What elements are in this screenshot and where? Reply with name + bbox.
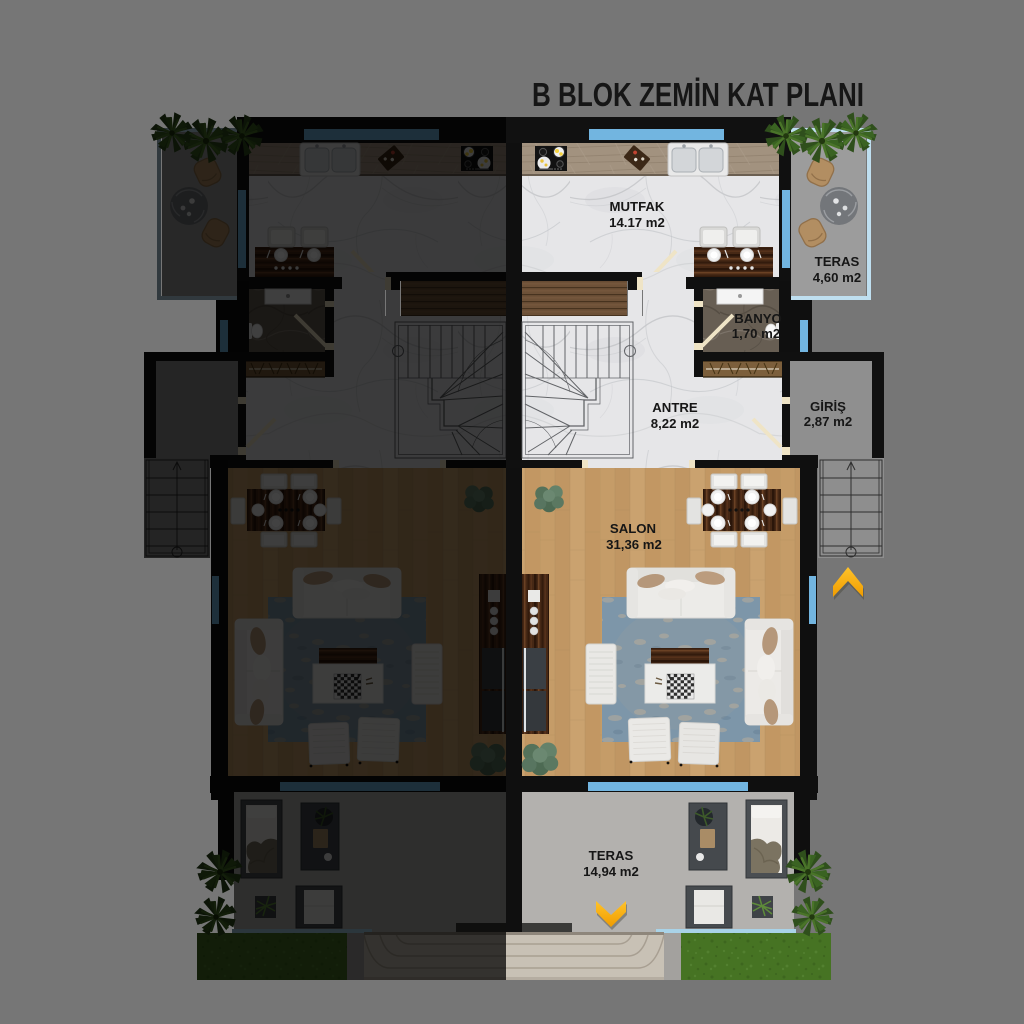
svg-text:SALON: SALON: [610, 521, 656, 536]
svg-text:MUTFAK: MUTFAK: [610, 199, 665, 214]
svg-text:B BLOK ZEMİN KAT PLANI: B BLOK ZEMİN KAT PLANI: [532, 76, 864, 113]
svg-text:4,60 m2: 4,60 m2: [813, 270, 861, 285]
svg-text:31,36 m2: 31,36 m2: [606, 537, 662, 552]
svg-text:8,22 m2: 8,22 m2: [651, 416, 699, 431]
svg-text:2,87 m2: 2,87 m2: [804, 414, 852, 429]
svg-text:BANYO: BANYO: [734, 311, 782, 326]
svg-text:TERAS: TERAS: [815, 254, 860, 269]
svg-text:ANTRE: ANTRE: [652, 400, 698, 415]
svg-text:14.17 m2: 14.17 m2: [609, 215, 665, 230]
svg-text:14,94 m2: 14,94 m2: [583, 864, 639, 879]
svg-text:GİRİŞ: GİRİŞ: [810, 399, 846, 414]
svg-text:1,70 m2: 1,70 m2: [732, 326, 780, 341]
svg-text:TERAS: TERAS: [589, 848, 634, 863]
